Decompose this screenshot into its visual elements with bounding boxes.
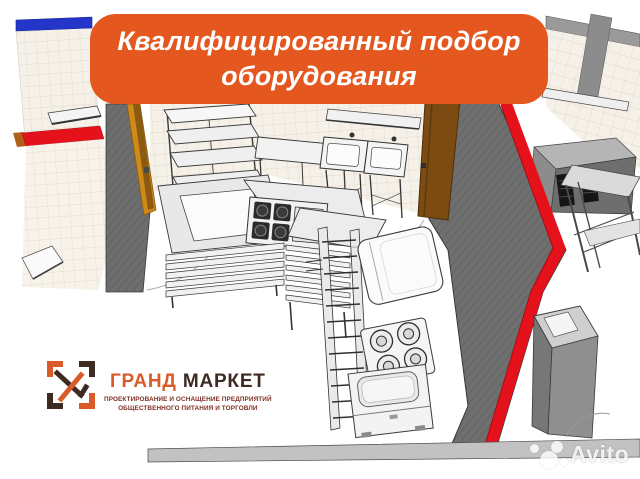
advert-image: Квалифицированный подбор оборудования ГР… xyxy=(0,0,640,479)
headline-banner: Квалифицированный подбор оборудования xyxy=(90,14,548,104)
watermark-logo-icon xyxy=(540,451,558,469)
watermark-dot-small xyxy=(530,444,539,453)
tagline-line-2: ОБЩЕСТВЕННОГО ПИТАНИЯ И ТОРГОВЛИ xyxy=(104,404,272,413)
brand-name: ГРАНД МАРКЕТ xyxy=(110,372,266,391)
door-handle-left xyxy=(144,167,150,174)
headline-line-2: оборудования xyxy=(221,59,417,94)
brand-second-word: МАРКЕТ xyxy=(183,371,266,392)
watermark-dot-tiny xyxy=(560,458,568,466)
brand-tagline: ПРОЕКТИРОВАНИЕ И ОСНАЩЕНИЕ ПРЕДПРИЯТИЙ О… xyxy=(104,395,272,414)
logo-mark-icon xyxy=(46,360,96,410)
tagline-line-1: ПРОЕКТИРОВАНИЕ И ОСНАЩЕНИЕ ПРЕДПРИЯТИЙ xyxy=(104,395,272,404)
headline-line-1: Квалифицированный подбор xyxy=(117,24,520,59)
logo-text-block: ГРАНД МАРКЕТ ПРОЕКТИРОВАНИЕ И ОСНАЩЕНИЕ … xyxy=(104,360,272,414)
watermark-dot-medium xyxy=(551,441,563,453)
sink-block-bottom-right xyxy=(532,306,598,438)
oven-unit xyxy=(348,364,433,438)
brand-first-word: ГРАНД xyxy=(110,371,177,392)
company-logo: ГРАНД МАРКЕТ ПРОЕКТИРОВАНИЕ И ОСНАЩЕНИЕ … xyxy=(46,360,272,414)
avito-watermark: Avito xyxy=(528,437,640,475)
watermark-text: Avito xyxy=(570,441,629,468)
door-handle-center xyxy=(421,163,426,168)
